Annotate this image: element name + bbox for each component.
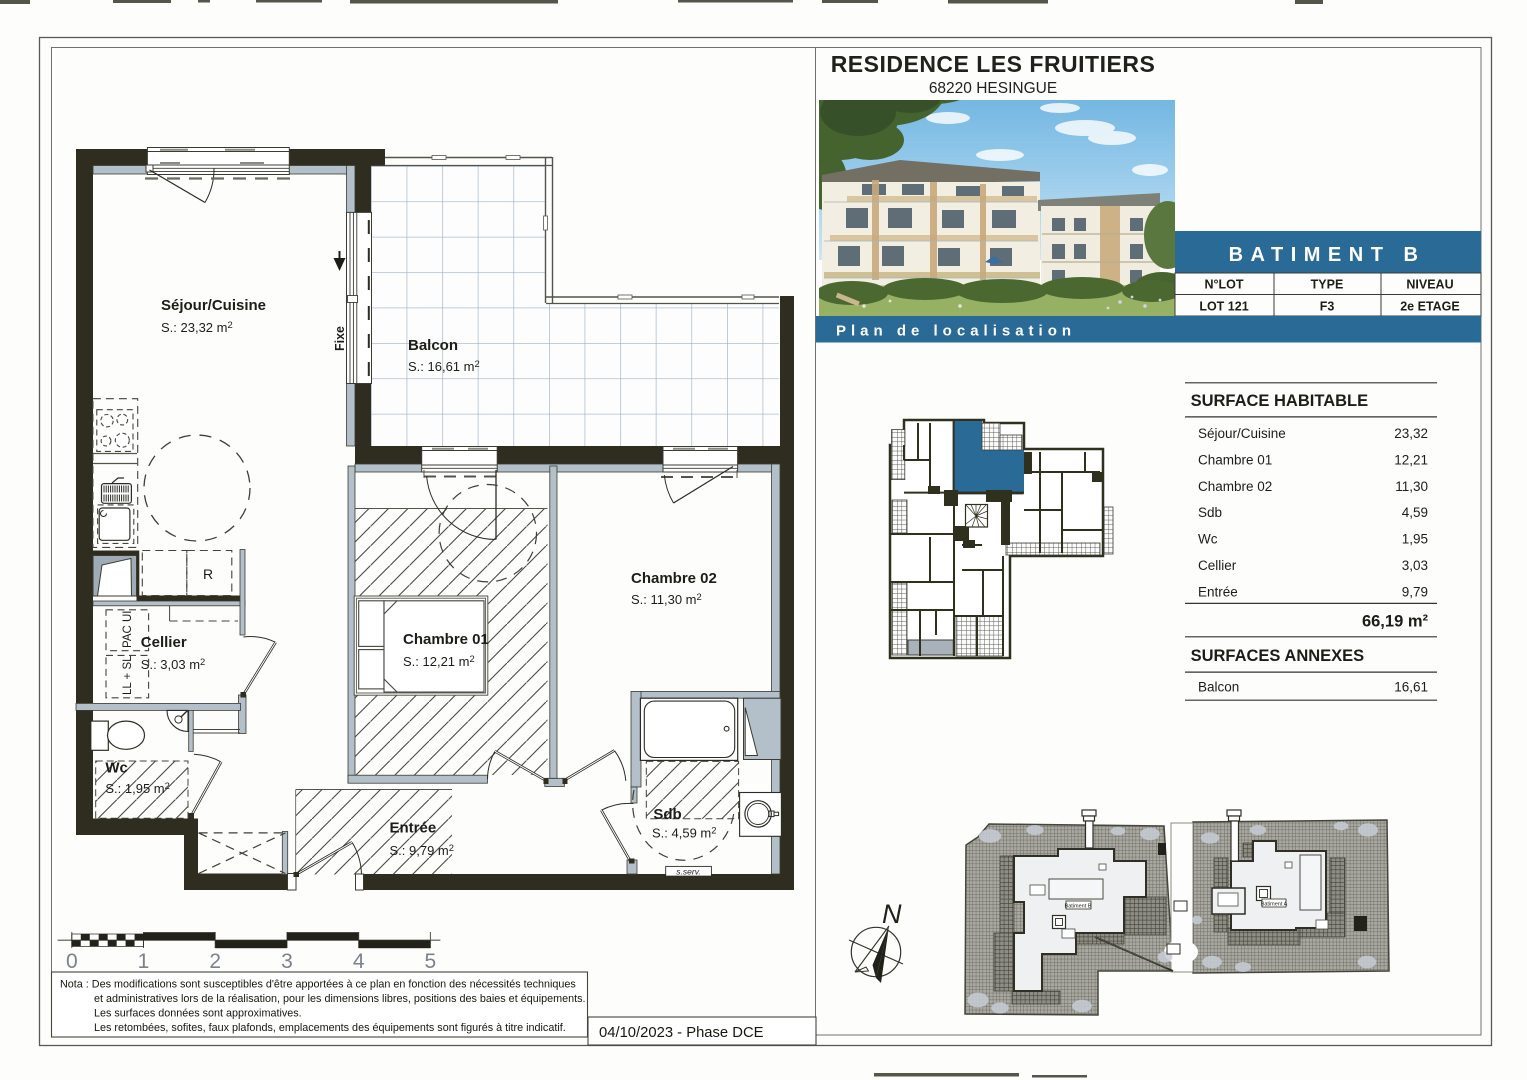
svg-text:9,79: 9,79 (1402, 584, 1428, 599)
svg-text:Chambre 01: Chambre 01 (403, 631, 489, 648)
svg-text:S.: 23,32 m2: S.: 23,32 m2 (161, 319, 233, 335)
svg-text:RESIDENCE LES FRUITIERS: RESIDENCE LES FRUITIERS (831, 51, 1156, 77)
svg-text:Plan de localisation: Plan de localisation (836, 323, 1076, 340)
svg-text:1,95: 1,95 (1402, 532, 1428, 547)
svg-text:PAC UI: PAC UI (122, 611, 134, 649)
svg-text:et administratives lors de la: et administratives lors de la réalisatio… (94, 993, 586, 1005)
svg-text:NIVEAU: NIVEAU (1406, 278, 1453, 292)
svg-text:3: 3 (281, 950, 293, 973)
svg-text:2e ETAGE: 2e ETAGE (1400, 300, 1460, 314)
svg-text:SURFACES ANNEXES: SURFACES ANNEXES (1191, 647, 1365, 665)
svg-text:Batiment A: Batiment A (1261, 902, 1288, 908)
svg-text:Entrée: Entrée (390, 820, 437, 837)
svg-text:Séjour/Cuisine: Séjour/Cuisine (1198, 426, 1286, 441)
svg-text:23,32: 23,32 (1394, 426, 1428, 441)
svg-text:16,61: 16,61 (1394, 680, 1428, 695)
svg-text:S.: 1,95 m2: S.: 1,95 m2 (105, 780, 169, 796)
svg-text:S.: 4,59 m2: S.: 4,59 m2 (652, 825, 716, 841)
svg-text:Batiment B: Batiment B (1065, 904, 1092, 910)
svg-text:0: 0 (66, 950, 78, 973)
svg-text:11,30: 11,30 (1395, 479, 1428, 494)
svg-text:LL + SL: LL + SL (122, 655, 134, 695)
svg-text:Séjour/Cuisine: Séjour/Cuisine (161, 297, 266, 314)
svg-text:Chambre 02: Chambre 02 (1198, 479, 1272, 494)
svg-text:S.: 11,30 m2: S.: 11,30 m2 (631, 591, 702, 607)
svg-text:Chambre 01: Chambre 01 (1198, 452, 1272, 467)
svg-text:Sdb: Sdb (653, 806, 681, 823)
svg-text:S.: 12,21 m2: S.: 12,21 m2 (403, 653, 475, 669)
svg-text:F3: F3 (1320, 300, 1335, 314)
svg-text:S.: 9,79 m2: S.: 9,79 m2 (390, 842, 454, 858)
svg-text:Cellier: Cellier (141, 634, 187, 651)
svg-text:N°LOT: N°LOT (1204, 278, 1243, 292)
svg-text:Les retombées, sofites, faux p: Les retombées, sofites, faux plafonds, e… (94, 1022, 566, 1034)
svg-text:LOT 121: LOT 121 (1199, 300, 1248, 314)
svg-text:4: 4 (353, 950, 365, 973)
svg-text:Balcon: Balcon (408, 337, 458, 354)
svg-text:BATIMENT B: BATIMENT B (1229, 244, 1426, 266)
svg-text:Fixe: Fixe (333, 326, 347, 351)
svg-text:3,03: 3,03 (1402, 558, 1428, 573)
svg-text:68220 HESINGUE: 68220 HESINGUE (929, 80, 1057, 97)
svg-text:5: 5 (425, 950, 437, 973)
svg-text:4,59: 4,59 (1402, 505, 1428, 520)
svg-text:s.serv.: s.serv. (676, 866, 700, 876)
svg-text:N: N (882, 899, 902, 929)
svg-text:Wc: Wc (105, 760, 128, 777)
svg-text:SURFACE HABITABLE: SURFACE HABITABLE (1191, 392, 1369, 410)
svg-text:Balcon: Balcon (1198, 680, 1239, 695)
svg-text:S.: 16,61 m2: S.: 16,61 m2 (408, 358, 480, 374)
svg-text:04/10/2023 - Phase DCE: 04/10/2023 - Phase DCE (599, 1025, 764, 1041)
svg-text:Wc: Wc (1198, 532, 1218, 547)
svg-text:Chambre 02: Chambre 02 (631, 570, 717, 587)
svg-text:66,19 m²: 66,19 m² (1362, 613, 1429, 631)
svg-text:S.: 3,03 m2: S.: 3,03 m2 (141, 656, 205, 672)
svg-text:Entrée: Entrée (1198, 584, 1238, 599)
svg-text:2: 2 (209, 950, 221, 973)
svg-text:TYPE: TYPE (1311, 278, 1344, 292)
svg-text:Cellier: Cellier (1198, 558, 1237, 573)
svg-text:Nota : Des modifications sont: Nota : Des modifications sont susceptibl… (60, 979, 576, 991)
svg-text:1: 1 (138, 950, 150, 973)
svg-text:Sdb: Sdb (1198, 505, 1222, 520)
svg-text:Les surfaces données sont appr: Les surfaces données sont approximatives… (94, 1008, 302, 1020)
svg-text:R: R (203, 566, 213, 582)
svg-text:12,21: 12,21 (1394, 452, 1428, 467)
